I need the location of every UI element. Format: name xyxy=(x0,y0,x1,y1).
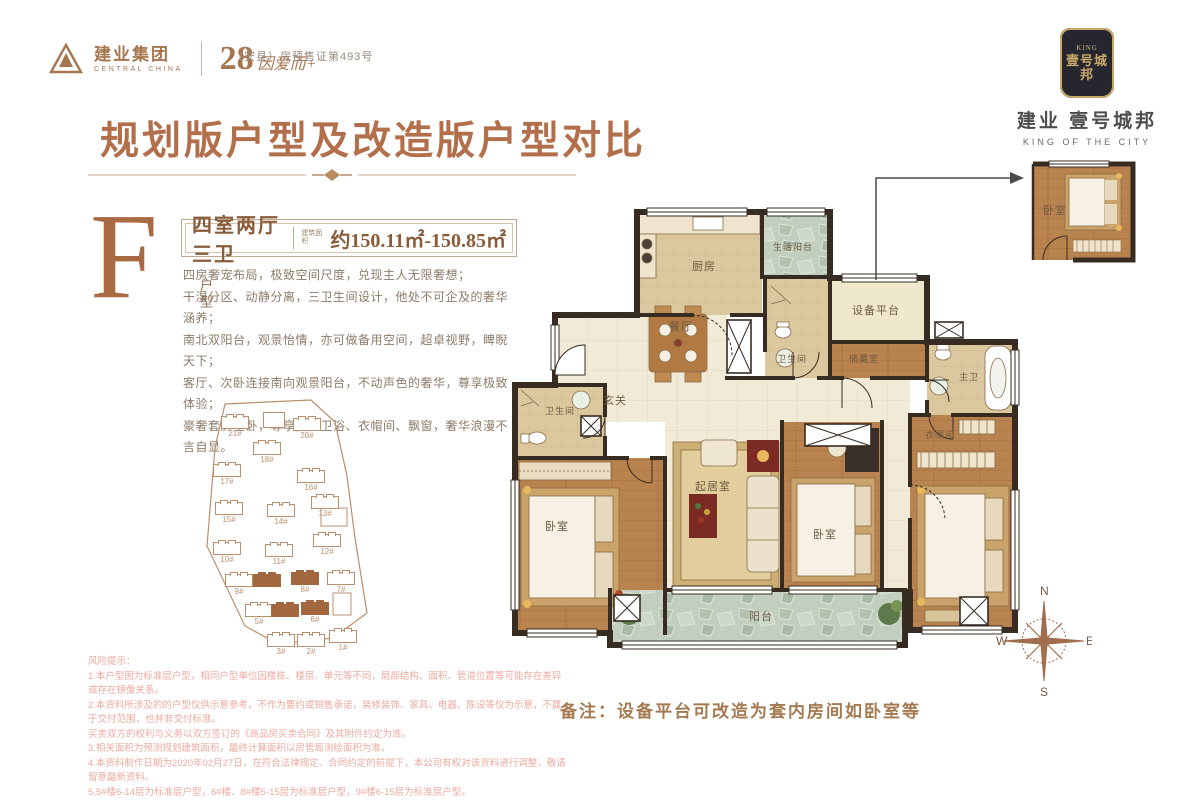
risk-disclaimer-line: 4.本资料制作日期为2020年02月27日，在符合法律规定、合同约定的前提下，本… xyxy=(88,757,568,786)
compass-rose: N S W E xyxy=(996,583,1092,699)
logo-en: CENTRAL CHINA xyxy=(94,66,183,73)
compass-n: N xyxy=(1040,584,1049,598)
label-dining: 餐厅 xyxy=(669,319,693,333)
label-service-balcony: 生活阳台 xyxy=(773,241,813,252)
label-bedroom-mid: 卧室 xyxy=(813,527,837,541)
emblem-king-text: KING xyxy=(1076,44,1098,52)
site-building: 15# xyxy=(215,502,243,515)
siteplan-sketch: 21#20#18#17#16#15#14#13#12#10#11#9#8#7#5… xyxy=(183,388,411,658)
unit-area-value: 约150.11㎡-150.85㎡ xyxy=(330,224,506,253)
label-equipment: 设备平台 xyxy=(852,303,900,317)
site-building: 5# xyxy=(245,604,273,617)
king-emblem-icon: KING 壹号城邦 xyxy=(1060,28,1114,98)
site-building: 17# xyxy=(213,464,241,477)
label-living: 起居室 xyxy=(695,479,731,493)
risk-disclaimer-title: 风险提示： xyxy=(88,655,568,670)
inset-floorplan: 卧室 xyxy=(1025,158,1141,268)
header-separator xyxy=(201,42,202,76)
site-building xyxy=(263,412,285,428)
page-title: 规划版户型及改造版户型对比 xyxy=(100,110,646,166)
site-building: 8# xyxy=(291,572,319,585)
unit-box-divider xyxy=(293,227,294,249)
logo-cn: 建业集团 xyxy=(94,46,183,63)
site-building: 9# xyxy=(225,574,253,587)
site-building: 21# xyxy=(221,416,249,429)
label-bath-left: 卫生间 xyxy=(545,405,575,416)
site-building: 12# xyxy=(313,534,341,547)
conversion-note: 备注：设备平台可改造为套内房间如卧室等 xyxy=(560,697,921,722)
unit-summary-box: 四室两厅三卫 建筑面积 约150.11㎡-150.85㎡ xyxy=(181,219,517,257)
label-closet: 衣帽间 xyxy=(925,429,955,440)
unit-letter: F xyxy=(90,196,158,318)
site-building: 6# xyxy=(301,602,329,615)
unit-feature-line: 南北双阳台，观景怡情，亦可做备用空间，超卓视野，睥睨天下； xyxy=(183,330,513,373)
inset-furniture xyxy=(1065,173,1122,252)
brand-name-en: KING OF THE CITY xyxy=(1002,137,1172,147)
unit-feature-line: 干湿分区、动静分离，三卫生间设计，他处不可企及的奢华涵养； xyxy=(183,287,513,330)
site-building: 18# xyxy=(253,442,281,455)
compass-s: S xyxy=(1040,685,1048,699)
site-building: 11# xyxy=(265,544,293,557)
risk-disclaimer-line: 5.5#楼6-14层为标准层户型，6#楼、8#楼5-15层为标准层户型，9#楼6… xyxy=(88,786,568,800)
label-master-bath: 主卫 xyxy=(959,371,979,382)
risk-disclaimer-line: 3.相关面积为预测规划建筑面积，最终计算面积以房管局测绘面积为准。 xyxy=(88,742,568,757)
site-building: 16# xyxy=(297,470,325,483)
unit-layout: 四室两厅三卫 xyxy=(192,209,285,267)
presale-permit: （安县）房预售证第493号 xyxy=(232,48,373,64)
risk-disclaimer-line: 买卖双方的权利与义务以双方签订的《商品房买卖合同》及其附件约定为准。 xyxy=(88,728,568,743)
central-china-logo-icon xyxy=(48,41,84,77)
label-bedroom-left: 卧室 xyxy=(545,519,569,533)
risk-disclaimer-line: 2.本资料所涉及的的户型仅供示意参考，不作为要约或销售承诺，装修装饰、家具、电器… xyxy=(88,699,568,728)
site-building xyxy=(253,574,281,587)
brand-block: KING 壹号城邦 建业 壹号城邦 KING OF THE CITY xyxy=(1002,28,1172,147)
label-balcony: 阳台 xyxy=(749,609,773,623)
site-building xyxy=(271,604,299,617)
label-bath-center: 卫生间 xyxy=(777,353,807,364)
emblem-cn-text: 壹号城邦 xyxy=(1060,54,1114,83)
title-divider-ornament xyxy=(88,168,576,182)
site-building: 7# xyxy=(327,572,355,585)
site-building: 1# xyxy=(329,630,357,643)
label-inset-bedroom: 卧室 xyxy=(1043,203,1067,217)
compass-w: W xyxy=(996,634,1008,648)
brand-name-cn: 建业 壹号城邦 xyxy=(1002,106,1172,133)
label-storage: 储藏室 xyxy=(849,353,879,364)
site-building: 20# xyxy=(293,418,321,431)
risk-disclaimer-line: 1.本户型图为标准层户型，相同户型单位因楼栋、楼层、单元等不同，局部结构、面积、… xyxy=(88,670,568,699)
label-kitchen: 厨房 xyxy=(692,260,716,273)
site-buildings-layer: 21#20#18#17#16#15#14#13#12#10#11#9#8#7#5… xyxy=(183,388,411,658)
site-building: 13# xyxy=(311,496,339,509)
risk-disclaimer: 风险提示： 1.本户型图为标准层户型，相同户型单位因楼栋、楼层、单元等不同，局部… xyxy=(88,655,568,800)
label-foyer: 玄关 xyxy=(603,393,627,407)
compass-e: E xyxy=(1086,634,1092,648)
site-building: 3# xyxy=(267,634,295,647)
conversion-arrow xyxy=(855,165,1035,285)
site-building: 14# xyxy=(267,504,295,517)
site-building: 2# xyxy=(297,634,325,647)
unit-area-label: 建筑面积 xyxy=(301,230,322,247)
site-building: 10# xyxy=(213,542,241,555)
risk-disclaimer-lines: 1.本户型图为标准层户型，相同户型单位因楼栋、楼层、单元等不同，局部结构、面积、… xyxy=(88,670,568,800)
unit-feature-line: 四房奢宠布局，极致空间尺度，兑现主人无限奢想； xyxy=(183,265,513,287)
